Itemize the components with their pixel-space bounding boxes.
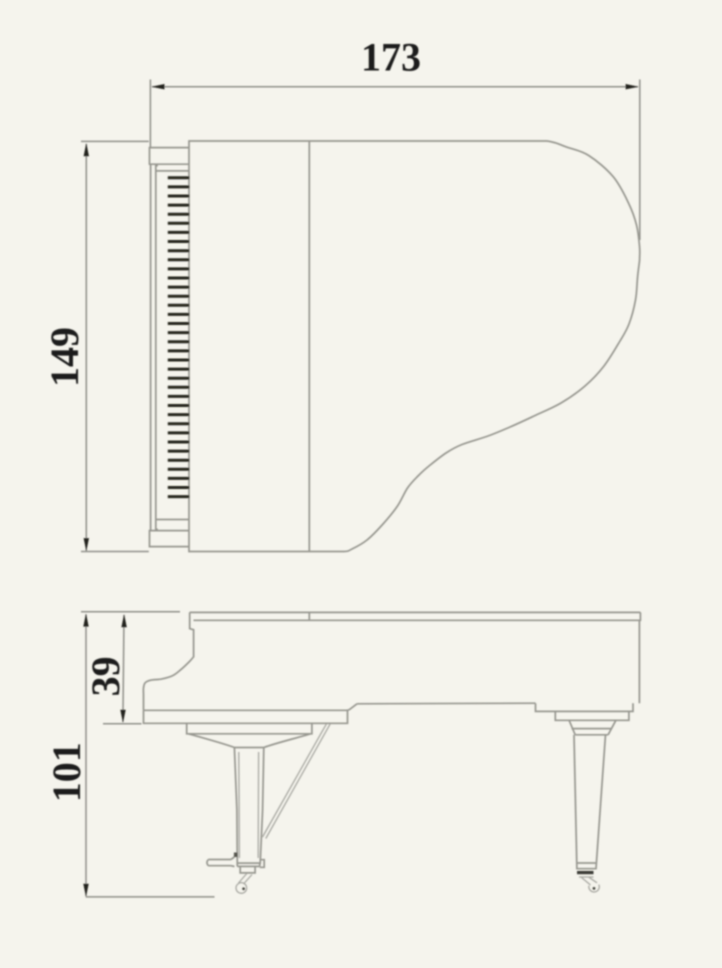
svg-text:173: 173	[361, 35, 421, 80]
svg-text:39: 39	[83, 656, 128, 696]
svg-text:101: 101	[44, 742, 89, 802]
svg-text:149: 149	[42, 327, 87, 387]
